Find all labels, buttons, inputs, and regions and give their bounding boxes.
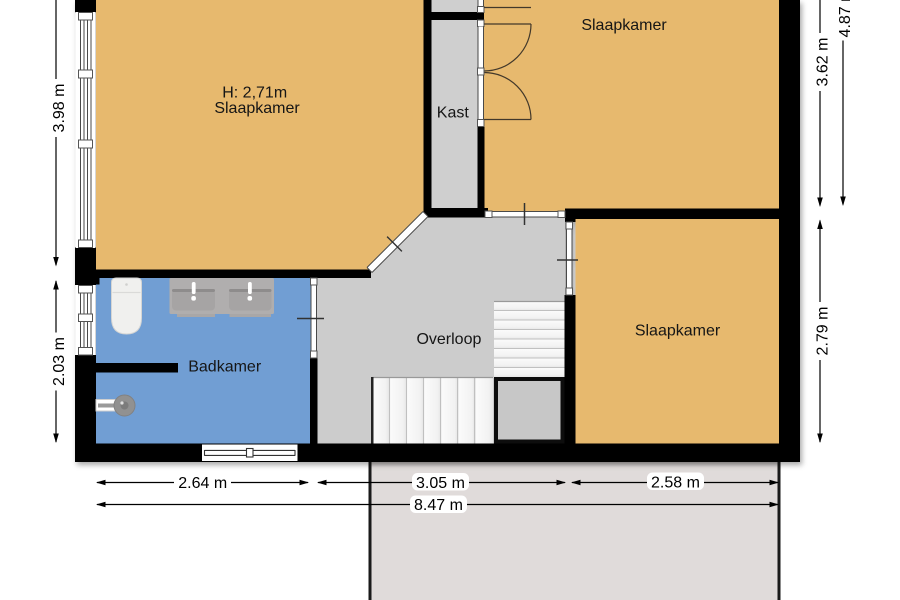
svg-text:2.79 m: 2.79 m (815, 307, 832, 356)
svg-text:3.98 m: 3.98 m (51, 84, 68, 133)
svg-text:H: 2,71m: H: 2,71m (222, 85, 287, 102)
svg-text:Overloop: Overloop (416, 331, 481, 348)
svg-text:Slaapkamer: Slaapkamer (581, 17, 667, 34)
svg-text:2.58 m: 2.58 m (651, 475, 700, 492)
svg-text:Slaapkamer: Slaapkamer (635, 323, 721, 340)
svg-text:2.03 m: 2.03 m (51, 337, 68, 386)
svg-text:Badkamer: Badkamer (188, 359, 262, 376)
svg-text:3.05 m: 3.05 m (416, 475, 465, 492)
svg-text:Kast: Kast (437, 105, 470, 122)
svg-text:2.64 m: 2.64 m (178, 475, 227, 492)
svg-text:3.62 m: 3.62 m (815, 38, 832, 87)
svg-text:8.47 m: 8.47 m (414, 497, 463, 514)
svg-text:Slaapkamer: Slaapkamer (214, 100, 300, 117)
svg-text:4.87 m: 4.87 m (837, 0, 854, 37)
